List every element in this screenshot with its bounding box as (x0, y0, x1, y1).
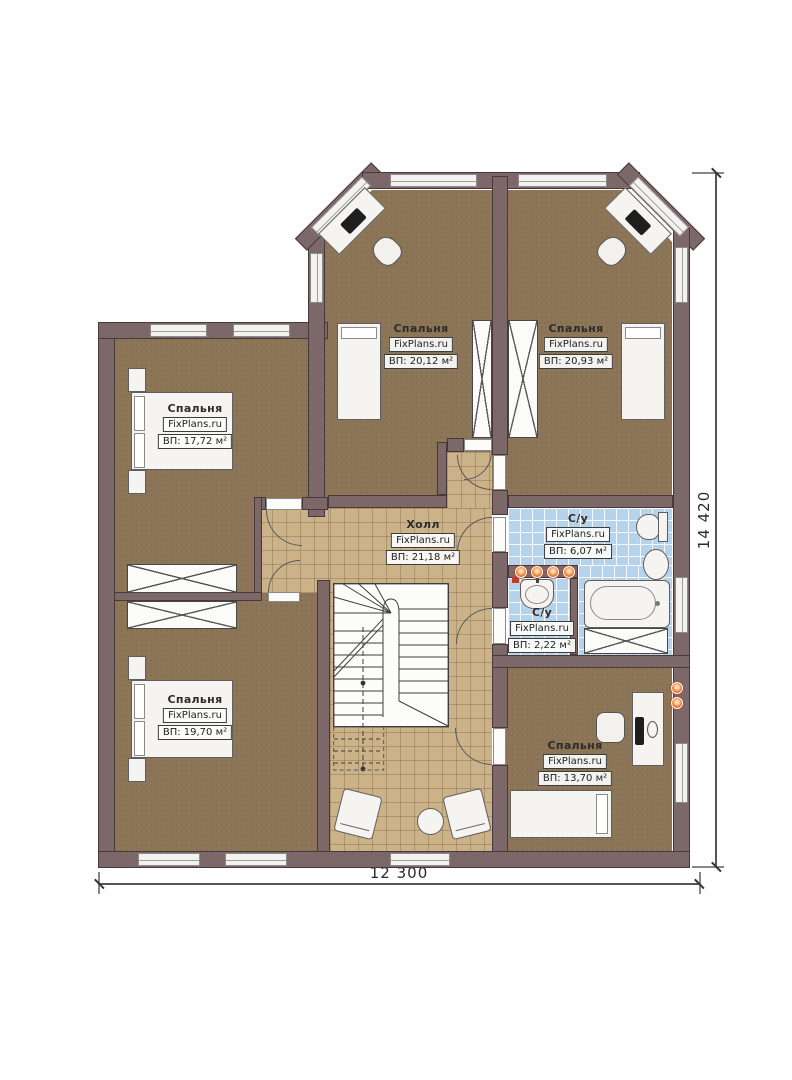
window (310, 253, 323, 303)
door-leaf (493, 517, 506, 552)
room-name: Спальня (548, 739, 603, 752)
extension-line (692, 172, 724, 174)
room-name: Спальня (168, 693, 223, 706)
window (150, 324, 207, 337)
wall-center-divider (492, 552, 508, 608)
floor-plan: Спальня FixPlans.ru ВП: 17,72 м² Спальня… (0, 0, 792, 1080)
wall-left-wing-top (98, 322, 328, 339)
door-leaf (268, 592, 300, 602)
wall-vestibule-north (302, 497, 328, 510)
room-name: С/у (568, 512, 588, 525)
spot-light (671, 682, 683, 694)
monitor-icon (635, 717, 644, 745)
watermark: FixPlans.ru (543, 754, 607, 769)
room-label-bedroom-left: Спальня FixPlans.ru ВП: 17,72 м² (158, 402, 232, 449)
room-area: ВП: 13,70 м² (538, 771, 612, 786)
armchair-seat-line (340, 823, 369, 831)
room-label-bedroom-top-middle: Спальня FixPlans.ru ВП: 20,12 м² (384, 322, 458, 369)
door-leaf (266, 498, 302, 510)
window (138, 853, 200, 866)
door-leaf (493, 455, 506, 490)
room-name: С/у (532, 606, 552, 619)
pillow (341, 327, 377, 339)
bathtub-basin (590, 586, 656, 620)
wall-bathroom-south (492, 655, 690, 668)
wardrobe (127, 564, 237, 593)
pillow (625, 327, 661, 339)
extension-line (692, 866, 724, 868)
room-name: Спальня (168, 402, 223, 415)
door-leaf (493, 608, 506, 644)
nightstand (128, 368, 146, 392)
wall-center-divider (492, 765, 508, 852)
room-name: Спальня (549, 322, 604, 335)
watermark: FixPlans.ru (510, 621, 574, 636)
pillow (134, 684, 145, 719)
room-label-bedroom-top-right: Спальня FixPlans.ru ВП: 20,93 м² (539, 322, 613, 369)
dimension-line-width (99, 883, 700, 885)
spot-light (671, 697, 683, 709)
pillow (134, 721, 145, 756)
wall-hall-column-north (447, 438, 464, 452)
spot-light (547, 566, 559, 578)
room-label-bedroom-bottom-left: Спальня FixPlans.ru ВП: 19,70 м² (158, 693, 232, 740)
wardrobe (508, 320, 538, 438)
wardrobe (584, 628, 668, 654)
desk (632, 692, 664, 766)
toilet (636, 514, 660, 540)
spot-light (531, 566, 543, 578)
washbasin-bowl (525, 585, 549, 604)
pillow (134, 396, 145, 431)
spot-light (563, 566, 575, 578)
spot-light (515, 566, 527, 578)
window (675, 743, 688, 803)
wall-center-divider (492, 176, 508, 455)
watermark: FixPlans.ru (544, 337, 608, 352)
pillow (596, 794, 608, 834)
room-label-bedroom-bottom-right: Спальня FixPlans.ru ВП: 13,70 м² (538, 739, 612, 786)
laptop-icon (625, 209, 652, 236)
armchair-seat-line (456, 823, 485, 831)
pillow (134, 433, 145, 468)
bathtub-drain (655, 601, 660, 606)
nightstand (128, 470, 146, 494)
nightstand (128, 758, 146, 782)
wall-vestibule-west (254, 497, 262, 597)
bidet (643, 549, 669, 580)
watermark: FixPlans.ru (163, 417, 227, 432)
room-area: ВП: 21,18 м² (386, 550, 460, 565)
room-label-bathroom-main: С/у FixPlans.ru ВП: 6,07 м² (544, 512, 612, 559)
wall-hall-west (317, 580, 330, 852)
watermark: FixPlans.ru (391, 533, 455, 548)
toilet-tank (658, 512, 668, 542)
watermark: FixPlans.ru (389, 337, 453, 352)
door-leaf (493, 728, 506, 765)
window (675, 577, 688, 633)
wall-center-divider (492, 490, 508, 515)
light-switch (512, 577, 519, 583)
watermark: FixPlans.ru (163, 708, 227, 723)
window (225, 853, 287, 866)
room-area: ВП: 17,72 м² (158, 434, 232, 449)
wardrobe (472, 320, 492, 438)
dimension-height-label: 14 420 (695, 491, 713, 550)
laptop-icon (340, 208, 367, 235)
room-area: ВП: 2,22 м² (508, 638, 576, 653)
window (390, 174, 477, 187)
watermark: FixPlans.ru (546, 527, 610, 542)
washbasin (520, 579, 554, 609)
wardrobe (127, 601, 237, 629)
coffee-table (417, 808, 444, 835)
wall-outer-left (98, 322, 115, 868)
room-area: ВП: 20,12 м² (384, 354, 458, 369)
bathtub (584, 580, 670, 628)
room-area: ВП: 6,07 м² (544, 544, 612, 559)
wall-bedrooms-left-divider (114, 592, 262, 601)
room-area: ВП: 20,93 м² (539, 354, 613, 369)
wall-hall-column-west (437, 442, 447, 495)
room-area: ВП: 19,70 м² (158, 725, 232, 740)
wall-bathroom-north (508, 495, 673, 508)
window (233, 324, 290, 337)
dimension-line-height (715, 173, 717, 867)
window (518, 174, 607, 187)
room-label-hall: Холл FixPlans.ru ВП: 21,18 м² (386, 518, 460, 565)
wall-bedroom-top-mid-south (328, 495, 447, 508)
desk-accessory (647, 721, 658, 738)
window (675, 247, 688, 303)
door-leaf (464, 439, 492, 451)
room-name: Холл (406, 518, 439, 531)
room-label-bathroom-small: С/у FixPlans.ru ВП: 2,22 м² (508, 606, 576, 653)
room-name: Спальня (394, 322, 449, 335)
staircase (333, 583, 449, 783)
window (390, 853, 450, 866)
nightstand (128, 656, 146, 680)
